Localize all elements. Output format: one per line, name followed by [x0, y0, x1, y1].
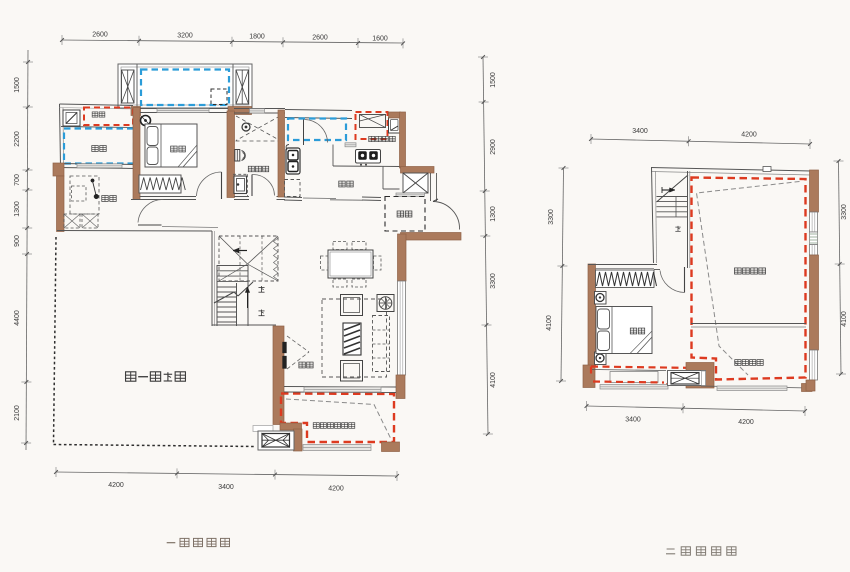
svg-text:4100: 4100 — [841, 311, 848, 327]
svg-text:1500: 1500 — [490, 72, 497, 88]
svg-text:1300: 1300 — [490, 206, 497, 222]
svg-text:1800: 1800 — [249, 34, 265, 41]
svg-text:4200: 4200 — [328, 486, 344, 493]
svg-text:1500: 1500 — [14, 77, 21, 93]
svg-text:3300: 3300 — [841, 204, 848, 220]
svg-text:3200: 3200 — [177, 33, 193, 40]
svg-text:2900: 2900 — [490, 139, 497, 155]
svg-text:2100: 2100 — [14, 405, 21, 421]
svg-text:4100: 4100 — [546, 315, 553, 331]
svg-text:3400: 3400 — [218, 484, 234, 491]
svg-text:3300: 3300 — [548, 209, 555, 225]
svg-text:700: 700 — [14, 174, 21, 186]
svg-text:3300: 3300 — [490, 273, 497, 289]
svg-text:1600: 1600 — [372, 36, 388, 43]
svg-text:4200: 4200 — [108, 482, 124, 489]
svg-text:2600: 2600 — [312, 35, 328, 42]
svg-text:3400: 3400 — [625, 417, 641, 424]
svg-text:1300: 1300 — [14, 201, 21, 217]
svg-text:4200: 4200 — [738, 419, 754, 426]
svg-text:3400: 3400 — [632, 128, 648, 135]
svg-text:4400: 4400 — [14, 310, 21, 326]
svg-text:900: 900 — [14, 235, 21, 247]
svg-text:2600: 2600 — [92, 32, 108, 39]
svg-text:4100: 4100 — [490, 372, 497, 388]
svg-text:4200: 4200 — [741, 132, 757, 139]
svg-text:2200: 2200 — [14, 131, 21, 147]
